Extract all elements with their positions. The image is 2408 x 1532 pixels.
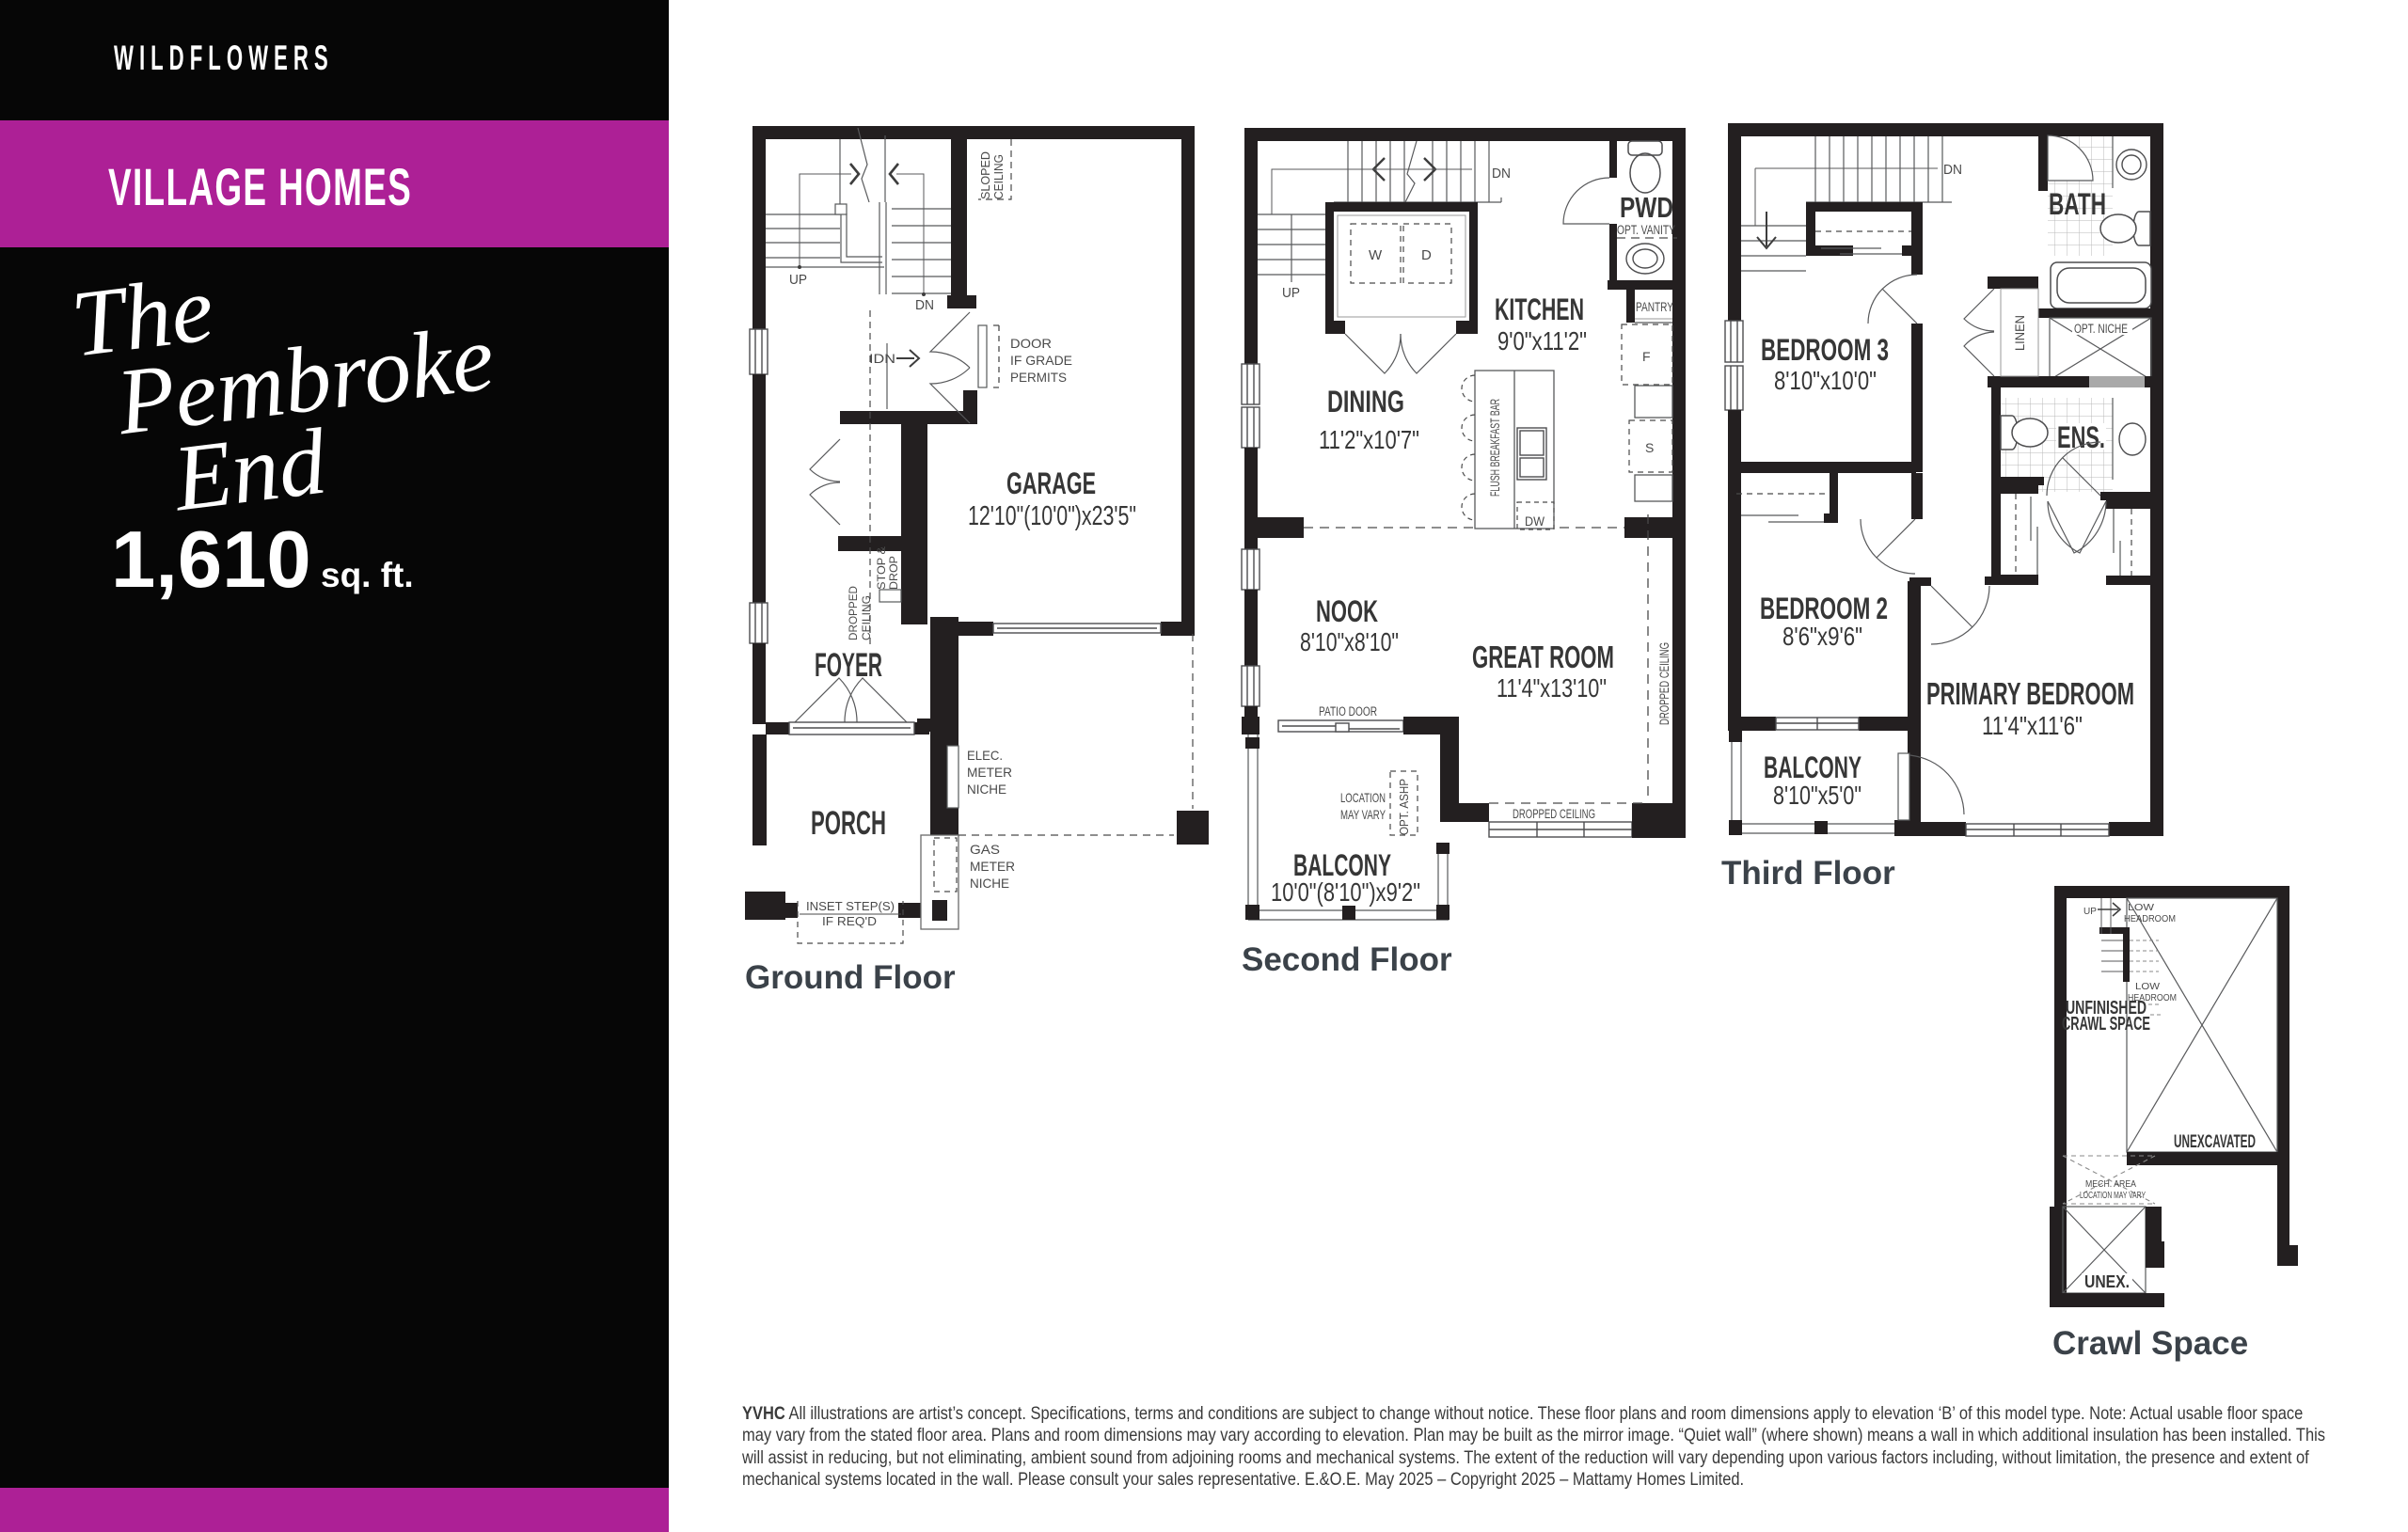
svg-text:PORCH: PORCH [811,805,886,842]
svg-text:LOCATION: LOCATION [1340,790,1386,805]
svg-text:BALCONY: BALCONY [1764,750,1861,784]
svg-text:DOOR: DOOR [1010,336,1052,351]
svg-text:CEILING: CEILING [860,595,873,640]
svg-text:DW: DW [1525,514,1545,529]
svg-text:UP: UP [2083,907,2097,917]
svg-text:DINING: DINING [1327,385,1404,419]
svg-text:PRIMARY BEDROOM: PRIMARY BEDROOM [1926,676,2134,711]
svg-text:8'10"x5'0": 8'10"x5'0" [1773,781,1861,810]
svg-text:GAS: GAS [970,842,1000,857]
svg-text:MECH. AREA: MECH. AREA [2085,1179,2136,1190]
svg-text:IDN: IDN [869,351,895,366]
svg-text:GREAT ROOM: GREAT ROOM [1472,640,1614,674]
svg-text:LOCATION MAY VARY: LOCATION MAY VARY [2080,1191,2146,1201]
svg-text:8'10"x10'0": 8'10"x10'0" [1774,366,1877,395]
svg-text:9'0"x11'2": 9'0"x11'2" [1497,326,1587,355]
svg-text:METER: METER [970,859,1015,874]
svg-text:OPT. VANITY: OPT. VANITY [1617,223,1675,237]
svg-text:UNEX.: UNEX. [2084,1272,2130,1291]
svg-text:PERMITS: PERMITS [1010,370,1067,385]
svg-text:CEILING: CEILING [991,154,1006,199]
svg-text:FOYER: FOYER [815,647,882,684]
svg-text:LOW: LOW [2128,903,2155,913]
svg-text:11'2"x10'7": 11'2"x10'7" [1319,425,1419,454]
svg-text:SLOPED: SLOPED [978,151,992,199]
svg-text:UP: UP [789,272,807,288]
svg-text:LOW: LOW [2135,982,2161,992]
svg-text:DN: DN [1492,166,1511,182]
svg-text:NOOK: NOOK [1316,594,1378,628]
svg-text:IF REQ'D: IF REQ'D [822,914,877,928]
svg-text:DROPPED CEILING: DROPPED CEILING [1513,807,1595,821]
svg-text:METER: METER [967,765,1012,780]
svg-text:DROPPED: DROPPED [847,586,860,640]
svg-text:PANTRY: PANTRY [1636,300,1673,314]
svg-text:PWD: PWD [1620,191,1673,224]
svg-text:ENS.: ENS. [2057,420,2105,454]
svg-text:11'4"x13'10": 11'4"x13'10" [1497,673,1607,703]
svg-text:KITCHEN: KITCHEN [1495,292,1584,326]
svg-text:W: W [1369,247,1383,263]
svg-text:DN: DN [1943,162,1962,178]
svg-text:DROPPED CEILING: DROPPED CEILING [1657,642,1671,725]
svg-text:STOP &: STOP & [875,546,888,590]
svg-text:CRAWL SPACE: CRAWL SPACE [2062,1014,2150,1034]
svg-text:F: F [1642,349,1651,364]
svg-text:10'0"(8'10")x9'2": 10'0"(8'10")x9'2" [1271,877,1420,907]
svg-text:12'10"(10'0")x23'5": 12'10"(10'0")x23'5" [968,501,1136,531]
svg-text:DN: DN [915,297,934,313]
svg-text:UNEXCAVATED: UNEXCAVATED [2174,1132,2256,1152]
svg-text:8'6"x9'6": 8'6"x9'6" [1782,622,1862,651]
svg-text:PATIO DOOR: PATIO DOOR [1319,704,1377,719]
svg-text:UP: UP [1282,285,1300,301]
svg-text:LINEN: LINEN [2013,315,2027,351]
svg-text:DROP: DROP [887,556,900,590]
svg-text:MAY VARY: MAY VARY [1340,807,1386,822]
svg-text:OPT. ASHP: OPT. ASHP [1397,779,1411,835]
svg-text:HEADROOM: HEADROOM [2124,914,2176,924]
svg-text:BEDROOM 2: BEDROOM 2 [1760,592,1888,625]
svg-text:D: D [1421,247,1432,263]
svg-text:NICHE: NICHE [970,876,1009,891]
svg-text:BEDROOM 3: BEDROOM 3 [1761,333,1889,367]
svg-text:11'4"x11'6": 11'4"x11'6" [1982,711,2083,740]
svg-text:ELEC.: ELEC. [967,748,1003,763]
svg-text:INSET STEP(S): INSET STEP(S) [806,899,895,913]
svg-text:S: S [1645,440,1654,455]
svg-text:IF GRADE: IF GRADE [1010,353,1072,368]
svg-text:NICHE: NICHE [967,782,1006,797]
svg-text:FLUSH BREAKFAST BAR: FLUSH BREAKFAST BAR [1488,399,1502,497]
svg-text:BATH: BATH [2049,187,2106,221]
svg-text:8'10"x8'10": 8'10"x8'10" [1300,627,1399,656]
svg-text:OPT. NICHE: OPT. NICHE [2074,322,2128,336]
svg-text:GARAGE: GARAGE [1006,466,1096,500]
